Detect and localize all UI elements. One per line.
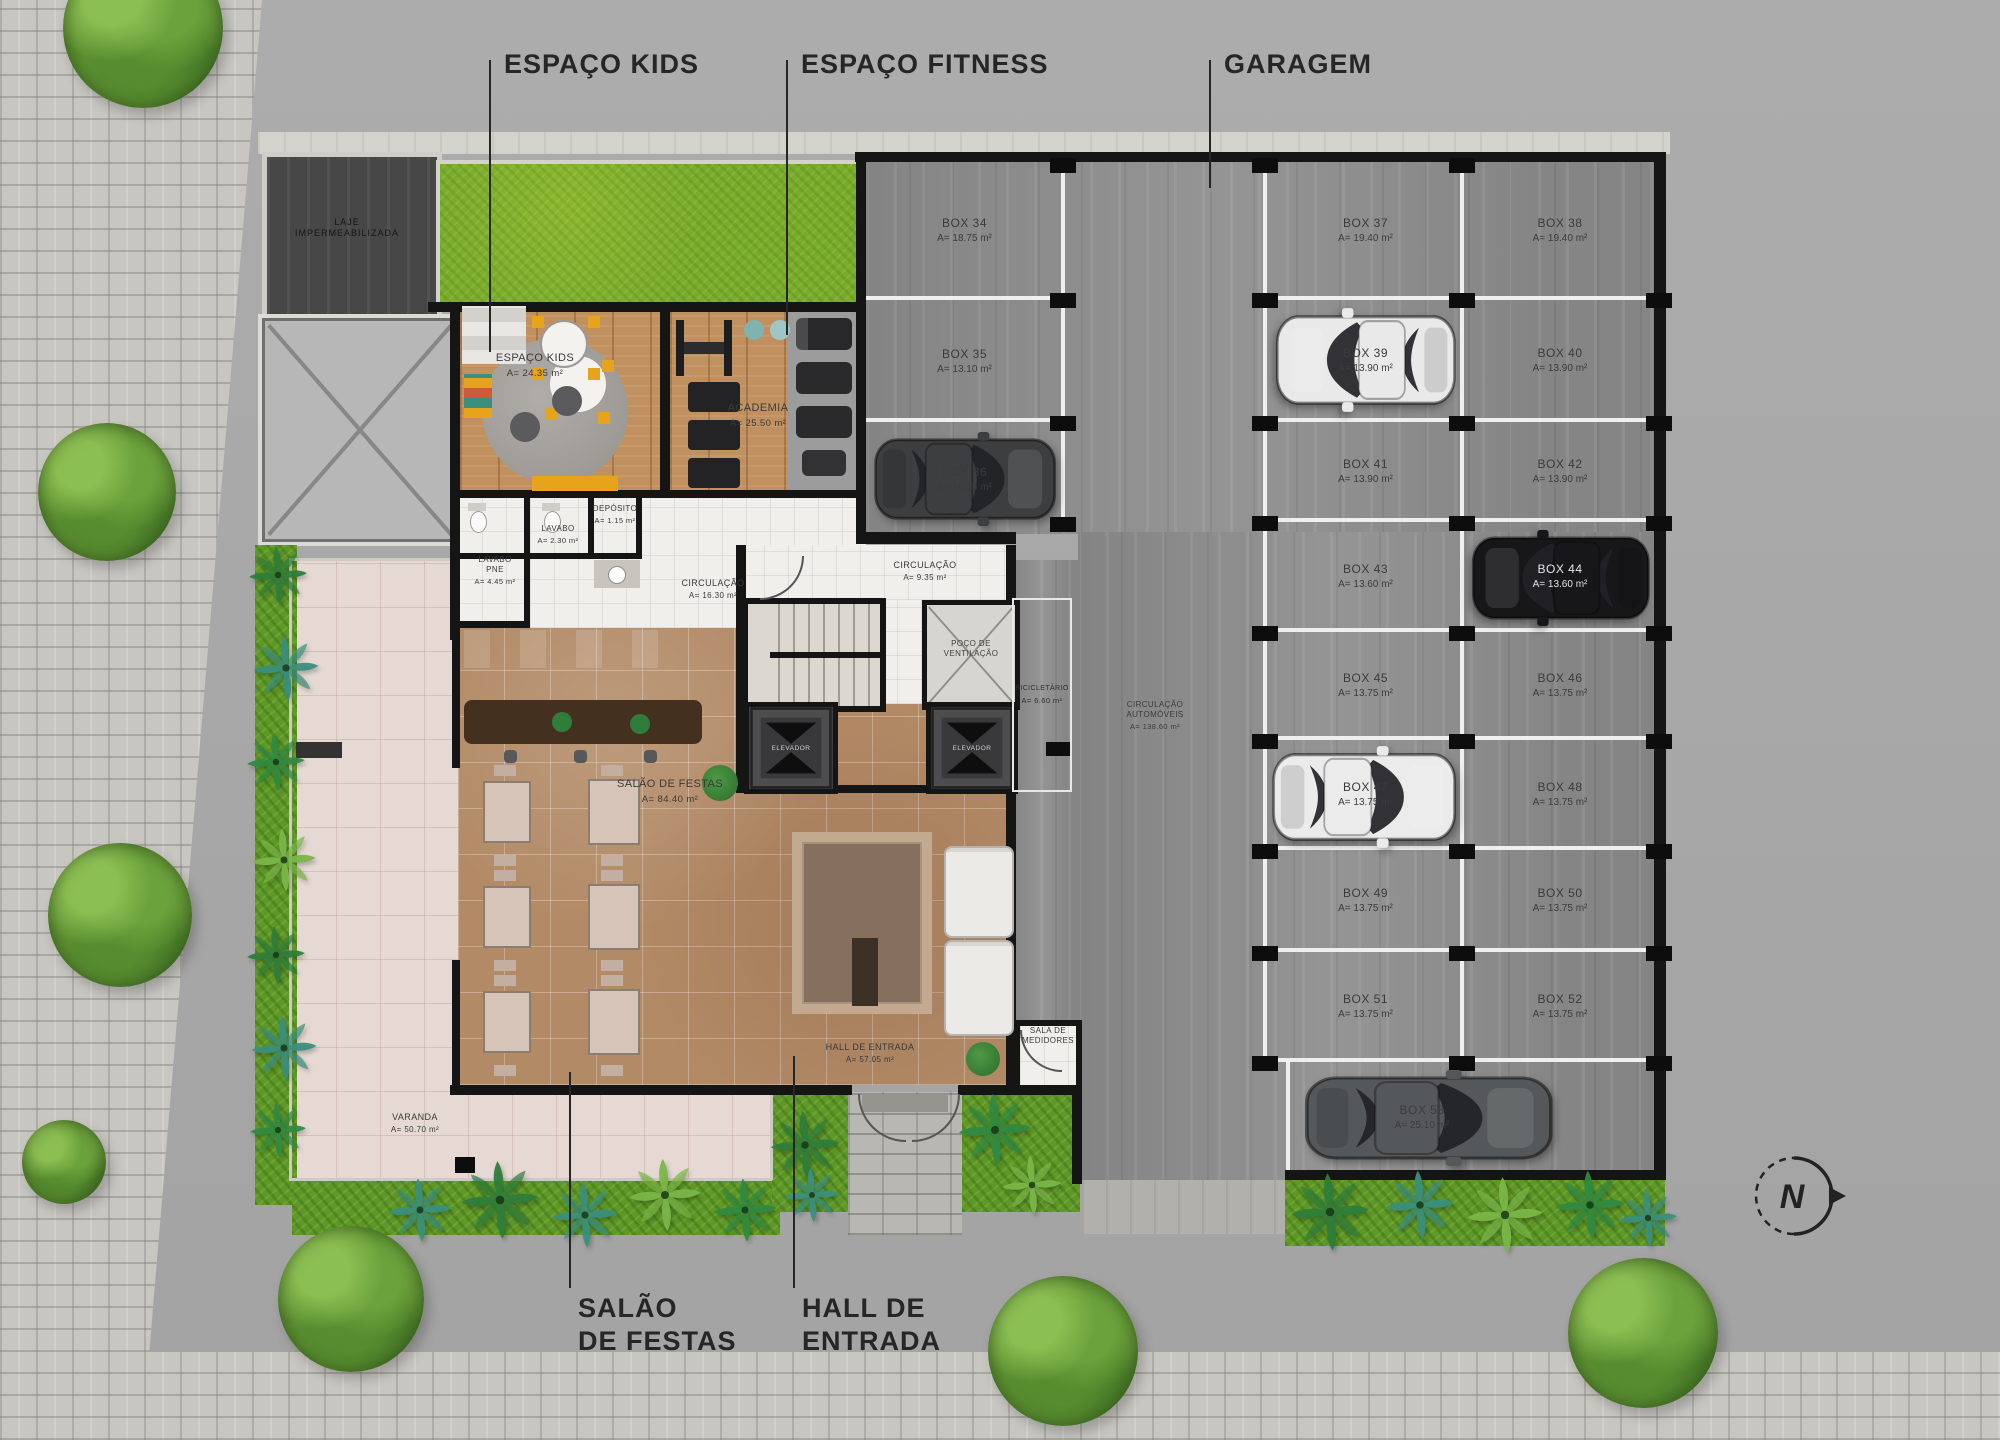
tree xyxy=(38,423,176,561)
hall-plant xyxy=(966,1042,1000,1076)
wall-pne-south xyxy=(452,621,530,628)
kids-bench xyxy=(532,476,618,491)
palm-plant xyxy=(385,1175,455,1245)
leader-hall xyxy=(793,1056,795,1288)
bar-island xyxy=(464,700,702,744)
parking-box-53: BOX 53A= 25.10 m² xyxy=(1292,1064,1552,1170)
shaft-label-line2: VENTILAÇÃO xyxy=(944,649,999,659)
toilet-bowl xyxy=(470,511,487,533)
auto-circulation-label: CIRCULAÇÃOAUTOMÓVEISA= 138.60 m² xyxy=(1112,700,1198,731)
gym-balls xyxy=(744,320,764,340)
core-circulation-label: CIRCULAÇÃOA= 9.35 m² xyxy=(862,560,988,583)
skylight-diagonals-icon xyxy=(265,321,455,539)
wall-west xyxy=(450,302,460,640)
parking-box-44: BOX 44A= 13.60 m² xyxy=(1466,524,1654,628)
palm-plant xyxy=(1382,1167,1458,1243)
north-arrow-icon xyxy=(1829,1187,1846,1205)
leader-salao xyxy=(569,1072,571,1288)
parking-box-41: BOX 41A= 13.90 m² xyxy=(1269,424,1462,518)
parking-box-34: BOX 34A= 18.75 m² xyxy=(866,162,1063,298)
palm-plant xyxy=(782,1165,842,1225)
palm-plant xyxy=(244,923,308,987)
palm-plant xyxy=(710,1175,780,1245)
stall-line xyxy=(1263,1058,1654,1062)
parking-box-43: BOX 43A= 13.60 m² xyxy=(1269,524,1462,628)
stair-rail xyxy=(770,652,880,658)
parking-box-47: BOX 47A= 13.75 m² xyxy=(1269,742,1462,846)
parking-box-40: BOX 40A= 13.90 m² xyxy=(1466,302,1654,418)
palm-plant xyxy=(249,825,319,895)
callout-garagem: GARAGEM xyxy=(1224,48,1372,81)
party-tables-row2 xyxy=(483,886,531,948)
stair-landing xyxy=(748,604,772,706)
palm-plant xyxy=(1463,1173,1547,1257)
curb-strip-top xyxy=(258,132,1670,154)
bike-storage-label: BICICLETÁRIO xyxy=(1015,685,1068,694)
sink-icon xyxy=(608,566,626,584)
callout-espaco-fitness: ESPAÇO FITNESS xyxy=(801,48,1049,81)
elevator-1: ELEVADOR xyxy=(744,702,838,794)
parking-box-35: BOX 35A= 13.10 m² xyxy=(866,302,1063,419)
parking-box-45: BOX 45A= 13.75 m² xyxy=(1269,634,1462,736)
gym-bench-rack xyxy=(676,320,732,376)
lavabo-label: LAVABOA= 2.30 m² xyxy=(526,524,590,545)
palm-plant xyxy=(1287,1169,1373,1255)
tree xyxy=(22,1120,106,1204)
kitchen-counter xyxy=(464,630,688,668)
skylight-terrace xyxy=(262,318,458,542)
callout-espaco-kids: ESPAÇO KIDS xyxy=(504,48,699,81)
party-tables-row1 xyxy=(483,781,531,843)
floor-plan-canvas: LAJE IMPERMEABILIZADA xyxy=(0,0,2000,1440)
leader-fitness xyxy=(786,60,788,335)
lavabo-pne-label: LAVABOPNEA= 4.45 m² xyxy=(460,555,530,586)
wall-salao-west-b xyxy=(452,960,460,1092)
wall-salao-west-a xyxy=(452,628,460,768)
wall-garage-north xyxy=(855,152,1666,162)
waterproof-slab: LAJE IMPERMEABILIZADA xyxy=(262,152,442,322)
tree xyxy=(48,843,192,987)
toilet-tank xyxy=(542,503,560,511)
exercise-bike xyxy=(802,450,846,476)
palm-plant xyxy=(999,1152,1065,1218)
bike-storage: BICICLETÁRIO A= 6.60 m² xyxy=(1012,598,1072,792)
stairwell xyxy=(742,598,886,712)
palm-plant xyxy=(625,1155,705,1235)
leader-garagem xyxy=(1209,60,1211,188)
parking-box-38: BOX 38A= 19.40 m² xyxy=(1466,162,1654,298)
hall-sofa-2 xyxy=(944,940,1014,1036)
wall-kids-gym-divider xyxy=(660,302,670,497)
kids-chairs xyxy=(532,316,544,328)
bike-storage-area: A= 6.60 m² xyxy=(1022,696,1063,705)
party-chairs-row2 xyxy=(494,870,516,881)
parking-box-51: BOX 51A= 13.75 m² xyxy=(1269,954,1462,1058)
callout-salao-de-festas: SALÃO DE FESTAS xyxy=(578,1292,737,1358)
party-tables-row3 xyxy=(483,991,531,1053)
palm-plant xyxy=(549,1179,621,1251)
tree xyxy=(1568,1258,1718,1408)
deposito-label: DEPÓSITOA= 1.15 m² xyxy=(590,504,640,525)
north-letter: N xyxy=(1780,1178,1806,1216)
stall-line xyxy=(1263,628,1654,632)
bar-stools xyxy=(504,750,517,763)
laje-label-line2: IMPERMEABILIZADA xyxy=(295,228,399,239)
parking-box-50: BOX 50A= 13.75 m² xyxy=(1466,852,1654,948)
bar-plants xyxy=(552,712,572,732)
stall-line xyxy=(1263,418,1654,422)
wall-garage-east xyxy=(1654,152,1666,1180)
palm-plant xyxy=(247,1099,309,1161)
parking-box-52: BOX 52A= 13.75 m² xyxy=(1466,954,1654,1058)
wall-south-a xyxy=(450,1085,852,1095)
parking-box-49: BOX 49A= 13.75 m² xyxy=(1269,852,1462,948)
wall-core-north xyxy=(856,532,1016,544)
parking-box-46: BOX 46A= 13.75 m² xyxy=(1466,634,1654,736)
gym-label: ACADEMIAA= 25.50 m² xyxy=(688,402,828,430)
varanda-parapet xyxy=(289,558,458,561)
wall-gym-garage xyxy=(856,158,866,540)
reception-console xyxy=(852,938,878,1006)
shaft-label-line1: POÇO DE xyxy=(951,639,991,649)
callout-hall-de-entrada: HALL DE ENTRADA xyxy=(802,1292,941,1358)
parking-box-39: BOX 39A= 13.90 m² xyxy=(1269,302,1462,418)
elevator-2: ELEVADOR xyxy=(926,702,1018,794)
meter-room-label: SALA DE MEDIDORES xyxy=(1012,1026,1084,1047)
kids-toy-shelf xyxy=(464,374,492,418)
parking-box-37: BOX 37A= 19.40 m² xyxy=(1269,162,1462,298)
parking-box-42: BOX 42A= 13.90 m² xyxy=(1466,424,1654,518)
callout-salao-line1: SALÃO xyxy=(578,1292,737,1325)
palm-plant xyxy=(244,730,308,794)
tree xyxy=(988,1276,1138,1426)
elevator-label: ELEVADOR xyxy=(953,745,992,752)
north-indicator: N xyxy=(1748,1146,1848,1246)
palm-plant xyxy=(246,543,310,607)
party-chairs-row3 xyxy=(494,975,516,986)
palm-plant xyxy=(1616,1186,1680,1250)
party-hall-label: SALÃO DE FESTASA= 84.40 m² xyxy=(600,778,740,806)
leader-kids xyxy=(489,60,491,352)
ventilation-shaft: POÇO DE VENTILAÇÃO xyxy=(922,600,1020,710)
stall-line xyxy=(1263,518,1654,522)
callout-salao-line2: DE FESTAS xyxy=(578,1325,737,1358)
callout-hall-line2: ENTRADA xyxy=(802,1325,941,1358)
party-chairs-row1 xyxy=(494,765,516,776)
parking-box-48: BOX 48A= 13.75 m² xyxy=(1466,742,1654,846)
hall-sofa-1 xyxy=(944,846,1014,938)
circulation-label: CIRCULAÇÃOA= 16.30 m² xyxy=(648,578,778,601)
treadmills xyxy=(796,318,852,350)
elevator-label: ELEVADOR xyxy=(772,745,811,752)
tree xyxy=(278,1226,424,1372)
varanda-label: VARANDAA= 50.70 m² xyxy=(345,1112,485,1135)
callout-hall-line1: HALL DE xyxy=(802,1292,941,1325)
column-marker xyxy=(1046,742,1070,756)
wall-entry-drive xyxy=(1072,1092,1082,1184)
entrance-hall-label: HALL DE ENTRADAA= 57.05 m² xyxy=(800,1042,940,1065)
toilet-tank xyxy=(468,503,486,511)
wall-rooms-south xyxy=(450,490,866,498)
laje-label-line1: LAJE xyxy=(334,217,360,228)
palm-plant xyxy=(250,632,322,704)
lawn xyxy=(436,160,864,310)
palm-plant xyxy=(248,1012,320,1084)
garage-entry-apron xyxy=(1082,1180,1285,1234)
stall-line xyxy=(1286,1060,1290,1170)
palm-plant xyxy=(457,1157,543,1243)
stall-line xyxy=(1263,948,1654,952)
kids-room-label: ESPAÇO KIDSA= 24.35 m² xyxy=(465,352,605,380)
stall-line xyxy=(1263,736,1654,740)
kids-bean-bags xyxy=(552,386,582,416)
parking-box-36: BOX 36A= 16.35 m² xyxy=(866,425,1063,532)
